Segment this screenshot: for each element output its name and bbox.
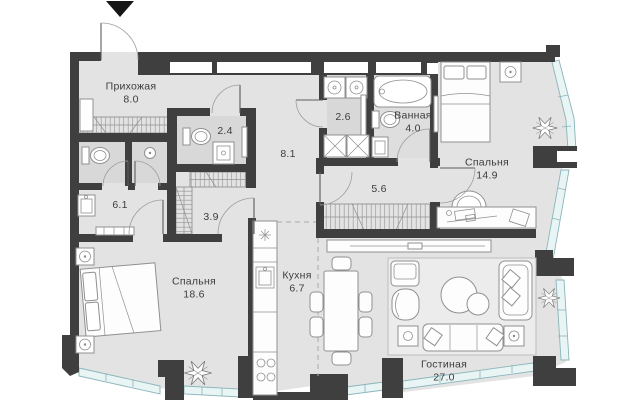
radiator [361, 95, 366, 135]
bed-double [441, 62, 490, 142]
sink-icon [372, 137, 388, 157]
side-table [398, 326, 418, 346]
floor-plan-svg [0, 0, 643, 400]
toilet-icon [183, 128, 211, 145]
bathtub-icon [374, 76, 431, 107]
bench [96, 227, 134, 235]
nightstand [500, 62, 521, 82]
storage-boxes [324, 135, 369, 157]
sink-icon [78, 195, 95, 216]
hallway-cabinet [80, 99, 93, 131]
entrance-arrow-icon [106, 1, 134, 17]
chaise-lounge [499, 261, 532, 320]
sofa [423, 324, 504, 351]
nightstand [76, 336, 94, 353]
toilet-icon [372, 111, 400, 128]
radiator [242, 127, 247, 157]
kitchen-counter [253, 221, 277, 395]
floor-plan: Прихожая8.02.42.6Ванная4.0Спальня14.98.1… [0, 0, 643, 400]
nightstand [76, 248, 94, 265]
tv-console [327, 240, 491, 252]
radiator [434, 96, 438, 132]
armchair [391, 261, 419, 286]
pendant-light-icon [145, 148, 156, 159]
bed-double [80, 263, 161, 337]
toilet-icon [82, 147, 110, 164]
shower-tray-icon [213, 142, 234, 164]
desk [437, 207, 536, 228]
side-table [504, 326, 524, 346]
armchair-round [392, 289, 419, 320]
